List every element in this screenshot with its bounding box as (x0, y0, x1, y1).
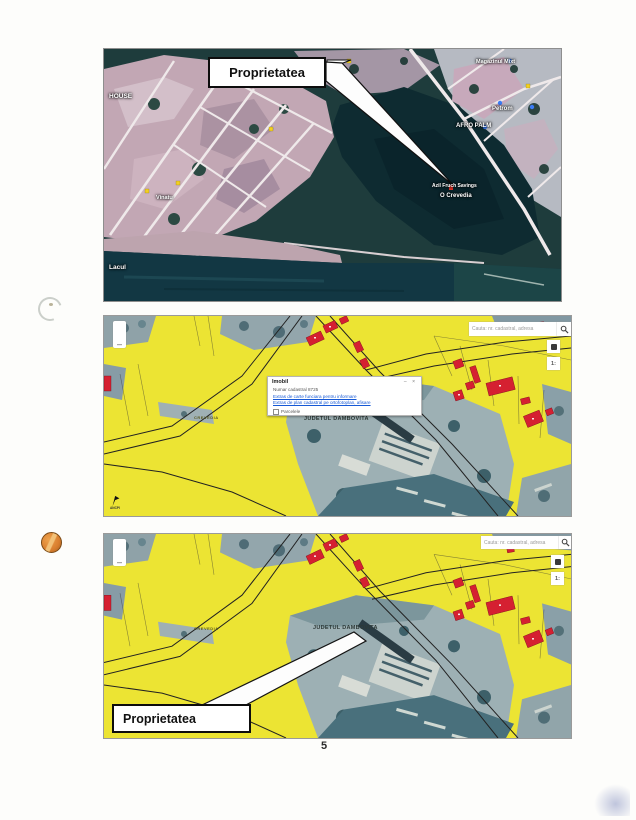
hole-punch-mark (34, 293, 66, 325)
layers-icon (555, 559, 561, 565)
map-label-street: Vinatu (156, 195, 173, 201)
property-callout-label: Proprietatea (123, 712, 196, 726)
search-placeholder: Cauta: nr. cadastral, adresa (472, 326, 533, 332)
search-button[interactable] (557, 322, 571, 336)
scale-button[interactable]: 1: (551, 572, 564, 585)
search-input[interactable]: Cauta: nr. cadastral, adresa (481, 536, 565, 549)
popup-title: Imobil (272, 379, 288, 385)
map-label-azil: Azil Fruch Savings (432, 183, 477, 189)
map-label-lake: Lacul (109, 264, 126, 271)
popup-minimize-button[interactable]: – (404, 379, 409, 385)
label-county: JUDETUL DAMBOVITA (304, 416, 369, 422)
scale-label: 1: (555, 576, 560, 582)
popup-info-line: Numar cadastral 8725 (273, 387, 417, 392)
cadastral-map-2: – Cauta: nr. cadastral, adresa 1: CREVED… (103, 533, 572, 739)
cadastral-map-1: – Cauta: nr. cadastral, adresa 1: Imobil… (103, 315, 572, 517)
map-label-store: Magazinul Mixt (476, 59, 515, 65)
search-icon (561, 538, 570, 547)
zoom-out-button[interactable]: – (113, 321, 126, 348)
popup-footer-label: Parcelele (281, 409, 300, 414)
zoom-out-button[interactable]: – (113, 539, 126, 566)
search-placeholder: Cauta: nr. cadastral, adresa (484, 540, 545, 546)
property-callout: Proprietatea (208, 57, 326, 88)
popup-link-extras-plan[interactable]: Extras de plan cadastral pe ortofotoplan… (273, 400, 417, 405)
map-label-locality: O Crevedia (440, 193, 472, 199)
scan-smudge (594, 784, 630, 816)
layers-button[interactable] (551, 555, 564, 568)
ancpi-logo-text: ANCPI (110, 506, 120, 510)
zoom-out-label: – (117, 340, 122, 348)
layers-button[interactable] (547, 340, 560, 353)
scanned-page: Proprietatea HOUSE Lacul Vinatu Magazinu… (0, 0, 636, 820)
ancpi-logo: ANCPI (110, 495, 122, 510)
map-label-house: HOUSE (109, 93, 132, 100)
map-label-afro: AFRO PALM (456, 123, 491, 129)
aerial-imagery (104, 49, 561, 301)
paper-speck (49, 303, 53, 306)
orange-dot-mark (41, 532, 62, 553)
popup-link-extras-cf[interactable]: Extras de carte funciara pentru informar… (273, 394, 417, 399)
checkbox-icon[interactable] (273, 409, 279, 415)
page-number: 5 (321, 740, 327, 752)
imobil-popup: Imobil – × Numar cadastral 8725 Extras d… (267, 376, 422, 416)
scale-label: 1: (551, 361, 556, 367)
popup-close-button[interactable]: × (412, 379, 417, 385)
search-input[interactable]: Cauta: nr. cadastral, adresa (469, 322, 563, 336)
zoom-out-label: – (117, 558, 122, 566)
search-button[interactable] (559, 536, 572, 549)
property-callout: Proprietatea (112, 704, 251, 733)
scale-button[interactable]: 1: (547, 357, 560, 370)
property-callout-label: Proprietatea (229, 65, 305, 80)
aerial-map: Proprietatea HOUSE Lacul Vinatu Magazinu… (103, 48, 562, 302)
map-label-petrom: Petrom (492, 106, 513, 112)
search-icon (560, 325, 569, 334)
layers-icon (551, 344, 557, 350)
label-commune: CREVEDIA (194, 415, 219, 420)
